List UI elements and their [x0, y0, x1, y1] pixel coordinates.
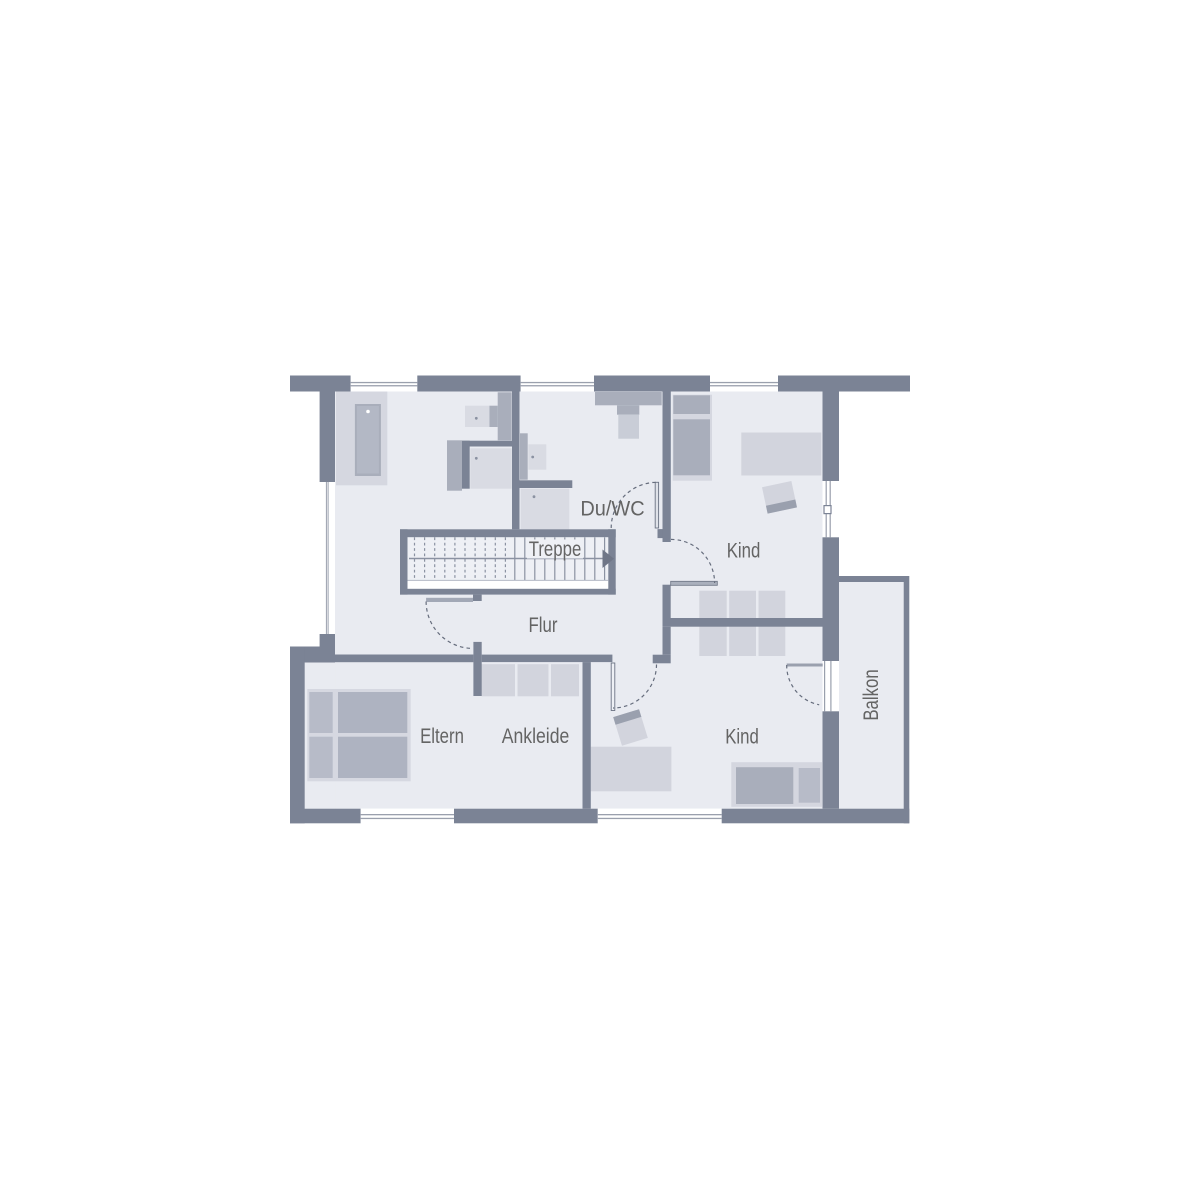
svg-text:Du/WC: Du/WC — [580, 497, 644, 521]
svg-text:Ankleide: Ankleide — [502, 725, 570, 749]
svg-text:Eltern: Eltern — [420, 725, 464, 748]
svg-text:Balkon: Balkon — [860, 669, 883, 720]
svg-text:Flur: Flur — [529, 614, 559, 637]
svg-text:Kind: Kind — [725, 726, 759, 749]
svg-text:Treppe: Treppe — [529, 538, 582, 561]
svg-text:Kind: Kind — [727, 540, 761, 563]
